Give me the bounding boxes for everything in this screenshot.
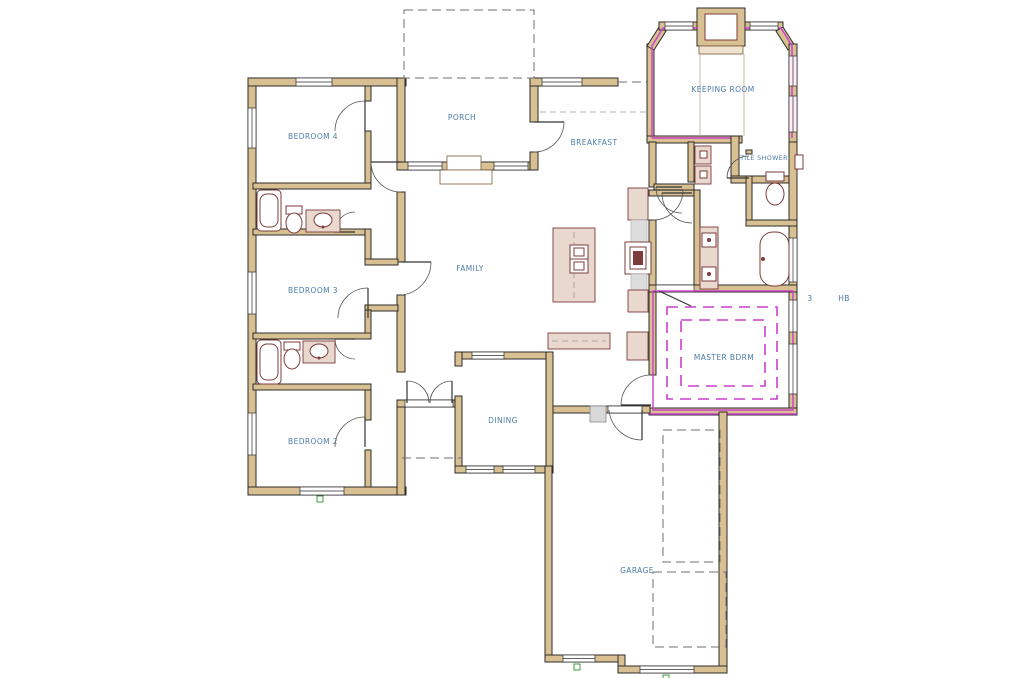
- bath2-fixtures: [257, 340, 335, 384]
- room-label-master-bdrm: MASTER BDRM: [694, 353, 754, 362]
- room-label-keeping-room: KEEPING ROOM: [691, 85, 754, 94]
- toilet-icon: [766, 172, 784, 181]
- annotation-hose-bib: HB: [838, 294, 850, 303]
- window-markers: [317, 496, 669, 678]
- attic-storage-outline-2: [653, 572, 726, 647]
- garage-walls: [545, 406, 727, 673]
- room-label-bedroom-2: BEDROOM 2: [288, 437, 338, 446]
- floor-plan-canvas: BEDROOM 4 PORCH BREAKFAST KEEPING ROOM T…: [0, 0, 1023, 678]
- room-label-tile-shower: TILE SHOWER: [739, 155, 788, 162]
- cabinet-run: [628, 188, 648, 220]
- floor-plan-drawing: BEDROOM 4 PORCH BREAKFAST KEEPING ROOM T…: [0, 0, 1023, 678]
- room-label-bedroom-3: BEDROOM 3: [288, 286, 338, 295]
- annotation-marker: 3: [807, 294, 812, 303]
- attic-storage-outline: [663, 430, 720, 562]
- room-label-breakfast: BREAKFAST: [571, 138, 618, 147]
- room-label-bedroom-4: BEDROOM 4: [288, 132, 338, 141]
- room-label-garage: GARAGE: [620, 566, 654, 575]
- foyer-dining-walls: [397, 352, 553, 473]
- room-label-family: FAMILY: [456, 264, 484, 273]
- porch-roof-outline: [404, 10, 534, 78]
- garage-steps: [590, 406, 606, 422]
- refrigerator-icon: [627, 332, 648, 360]
- hearth: [699, 46, 743, 54]
- firebox-icon: [705, 14, 737, 40]
- room-label-porch: PORCH: [448, 113, 476, 122]
- room-label-dining: DINING: [488, 416, 518, 425]
- shower-valve-icon: [795, 155, 803, 169]
- bath1-fixtures: [257, 190, 340, 233]
- kitchen-fixtures: [548, 188, 651, 360]
